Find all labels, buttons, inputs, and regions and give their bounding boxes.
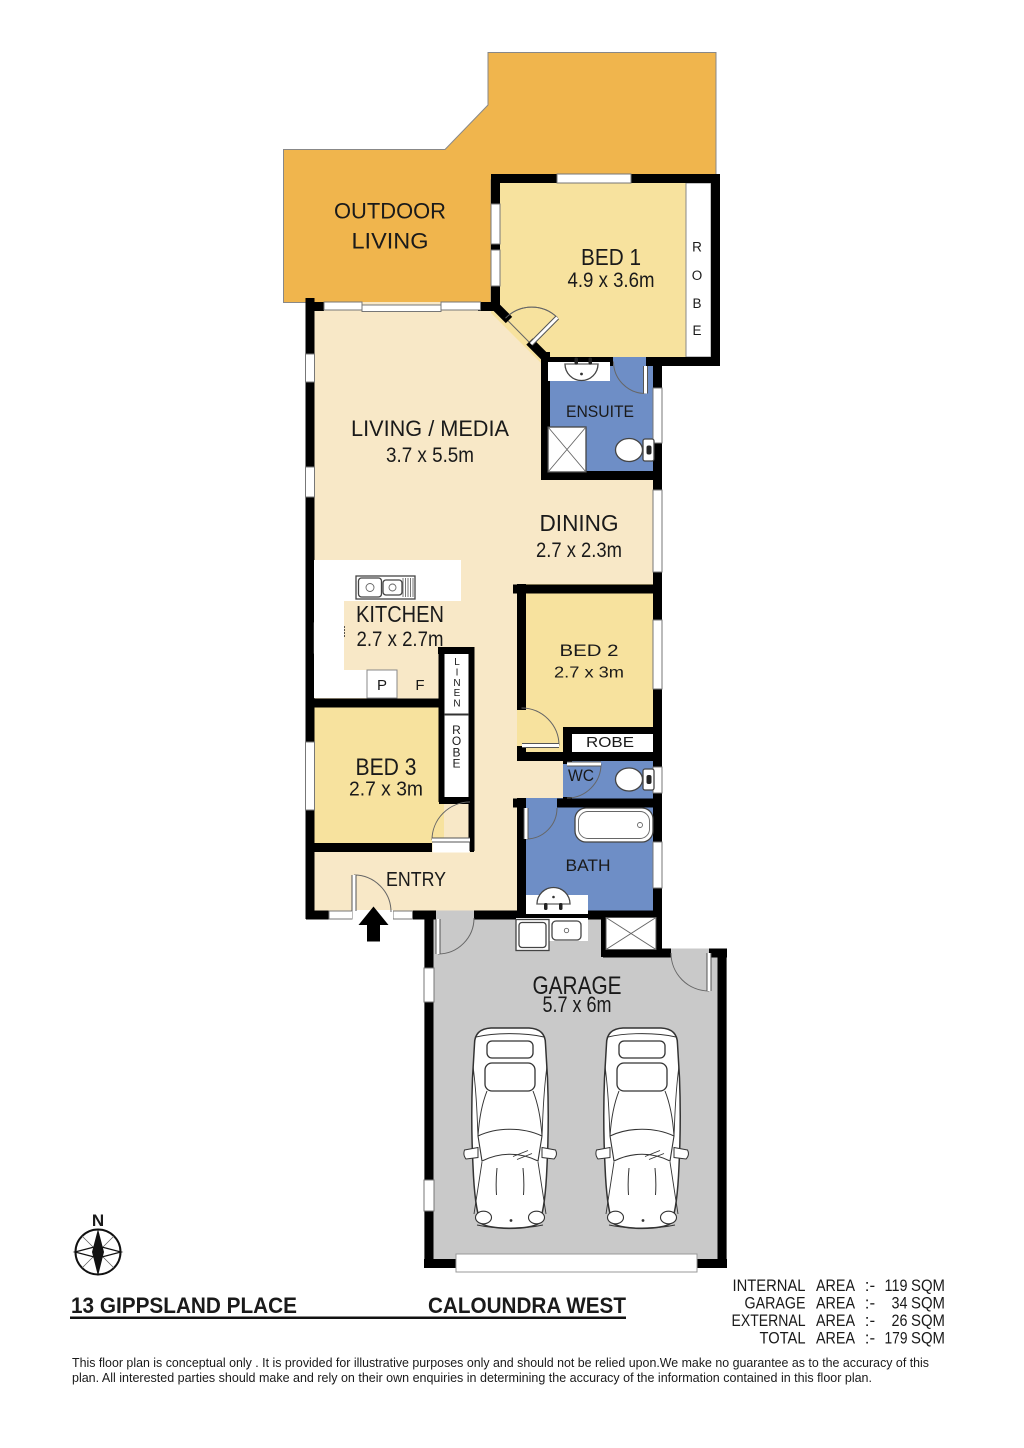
svg-text:EXTERNAL: EXTERNAL xyxy=(732,1311,806,1330)
svg-text:SQM: SQM xyxy=(911,1329,945,1348)
svg-text:179: 179 xyxy=(885,1329,908,1348)
svg-text:TOTAL: TOTAL xyxy=(760,1329,806,1348)
svg-text:4.9 x 3.6m: 4.9 x 3.6m xyxy=(568,269,655,292)
svg-text:2.7 x 2.7m: 2.7 x 2.7m xyxy=(357,628,444,651)
svg-text:N: N xyxy=(92,1211,104,1230)
svg-text:This floor plan is conceptual: This floor plan is conceptual only . It … xyxy=(72,1355,929,1370)
svg-text:F: F xyxy=(415,677,424,694)
svg-text:KITCHEN: KITCHEN xyxy=(356,601,444,627)
svg-text:E: E xyxy=(454,688,461,699)
svg-text:BED 1: BED 1 xyxy=(581,244,641,270)
svg-text:OUTDOOR: OUTDOOR xyxy=(334,199,446,224)
svg-text:SQM: SQM xyxy=(911,1276,945,1295)
svg-text:BATH: BATH xyxy=(566,856,611,875)
svg-text:plan. All interested parties s: plan. All interested parties should make… xyxy=(72,1370,872,1385)
svg-text:E: E xyxy=(452,757,460,771)
svg-text:O: O xyxy=(692,268,703,283)
svg-text:GARAGE: GARAGE xyxy=(745,1294,806,1313)
svg-text:13 GIPPSLAND PLACE: 13 GIPPSLAND PLACE xyxy=(71,1293,297,1318)
svg-text:5.7 x 6m: 5.7 x 6m xyxy=(543,992,612,1017)
svg-text:INTERNAL: INTERNAL xyxy=(733,1276,806,1295)
svg-text:ENTRY: ENTRY xyxy=(386,869,446,891)
svg-text:R: R xyxy=(692,240,702,255)
svg-text:P: P xyxy=(377,677,387,694)
svg-text:L: L xyxy=(454,657,460,668)
svg-text::-: :- xyxy=(865,1311,875,1330)
svg-text:119: 119 xyxy=(885,1276,908,1295)
svg-text:3.7 x 5.5m: 3.7 x 5.5m xyxy=(386,444,474,467)
svg-text:34: 34 xyxy=(892,1294,908,1313)
svg-text:BED 3: BED 3 xyxy=(356,754,417,781)
svg-text:B: B xyxy=(692,296,701,311)
svg-text:26: 26 xyxy=(892,1311,908,1330)
svg-text:LIVING: LIVING xyxy=(352,229,429,254)
svg-text:ROBE: ROBE xyxy=(586,734,634,751)
svg-text:SQM: SQM xyxy=(911,1294,945,1313)
svg-text:2.7 x 3m: 2.7 x 3m xyxy=(554,665,624,682)
svg-text:N: N xyxy=(453,699,460,710)
svg-text:BED 2: BED 2 xyxy=(560,641,619,660)
svg-text:AREA: AREA xyxy=(816,1276,856,1295)
svg-text:WC: WC xyxy=(568,766,594,785)
svg-text:SQM: SQM xyxy=(911,1311,945,1330)
svg-text:I: I xyxy=(456,668,459,679)
svg-text:LIVING / MEDIA: LIVING / MEDIA xyxy=(351,416,509,441)
svg-text::-: :- xyxy=(865,1276,875,1295)
svg-text:AREA: AREA xyxy=(816,1329,856,1348)
svg-text:2.7 x 3m: 2.7 x 3m xyxy=(349,779,423,801)
svg-text:2.7 x 2.3m: 2.7 x 2.3m xyxy=(536,539,622,562)
svg-text::-: :- xyxy=(865,1329,875,1348)
svg-text:CALOUNDRA WEST: CALOUNDRA WEST xyxy=(428,1293,627,1318)
svg-text:AREA: AREA xyxy=(816,1294,856,1313)
svg-text:AREA: AREA xyxy=(816,1311,856,1330)
svg-text::-: :- xyxy=(865,1294,875,1313)
svg-text:E: E xyxy=(692,323,701,338)
svg-text:ENSUITE: ENSUITE xyxy=(566,402,634,421)
svg-text:DINING: DINING xyxy=(540,510,619,536)
